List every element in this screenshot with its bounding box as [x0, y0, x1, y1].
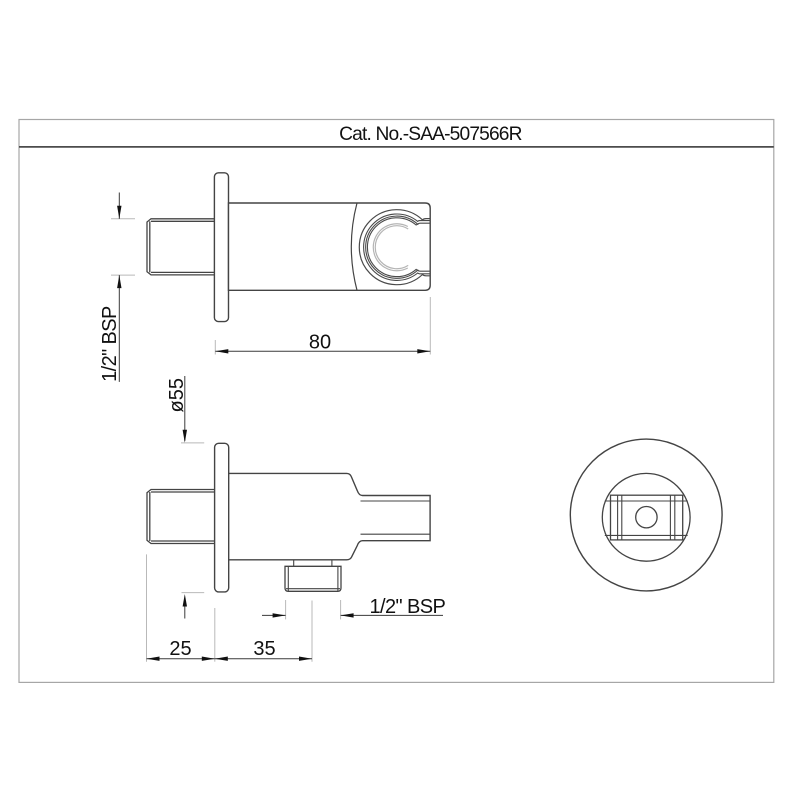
- svg-text:Cat. No.-SAA-507566R: Cat. No.-SAA-507566R: [339, 124, 521, 145]
- svg-text:25: 25: [169, 638, 191, 660]
- svg-text:80: 80: [309, 332, 331, 354]
- svg-text:1/2" BSP: 1/2" BSP: [370, 596, 446, 618]
- svg-text:1/2" BSP: 1/2" BSP: [99, 306, 121, 382]
- svg-text:35: 35: [253, 638, 275, 660]
